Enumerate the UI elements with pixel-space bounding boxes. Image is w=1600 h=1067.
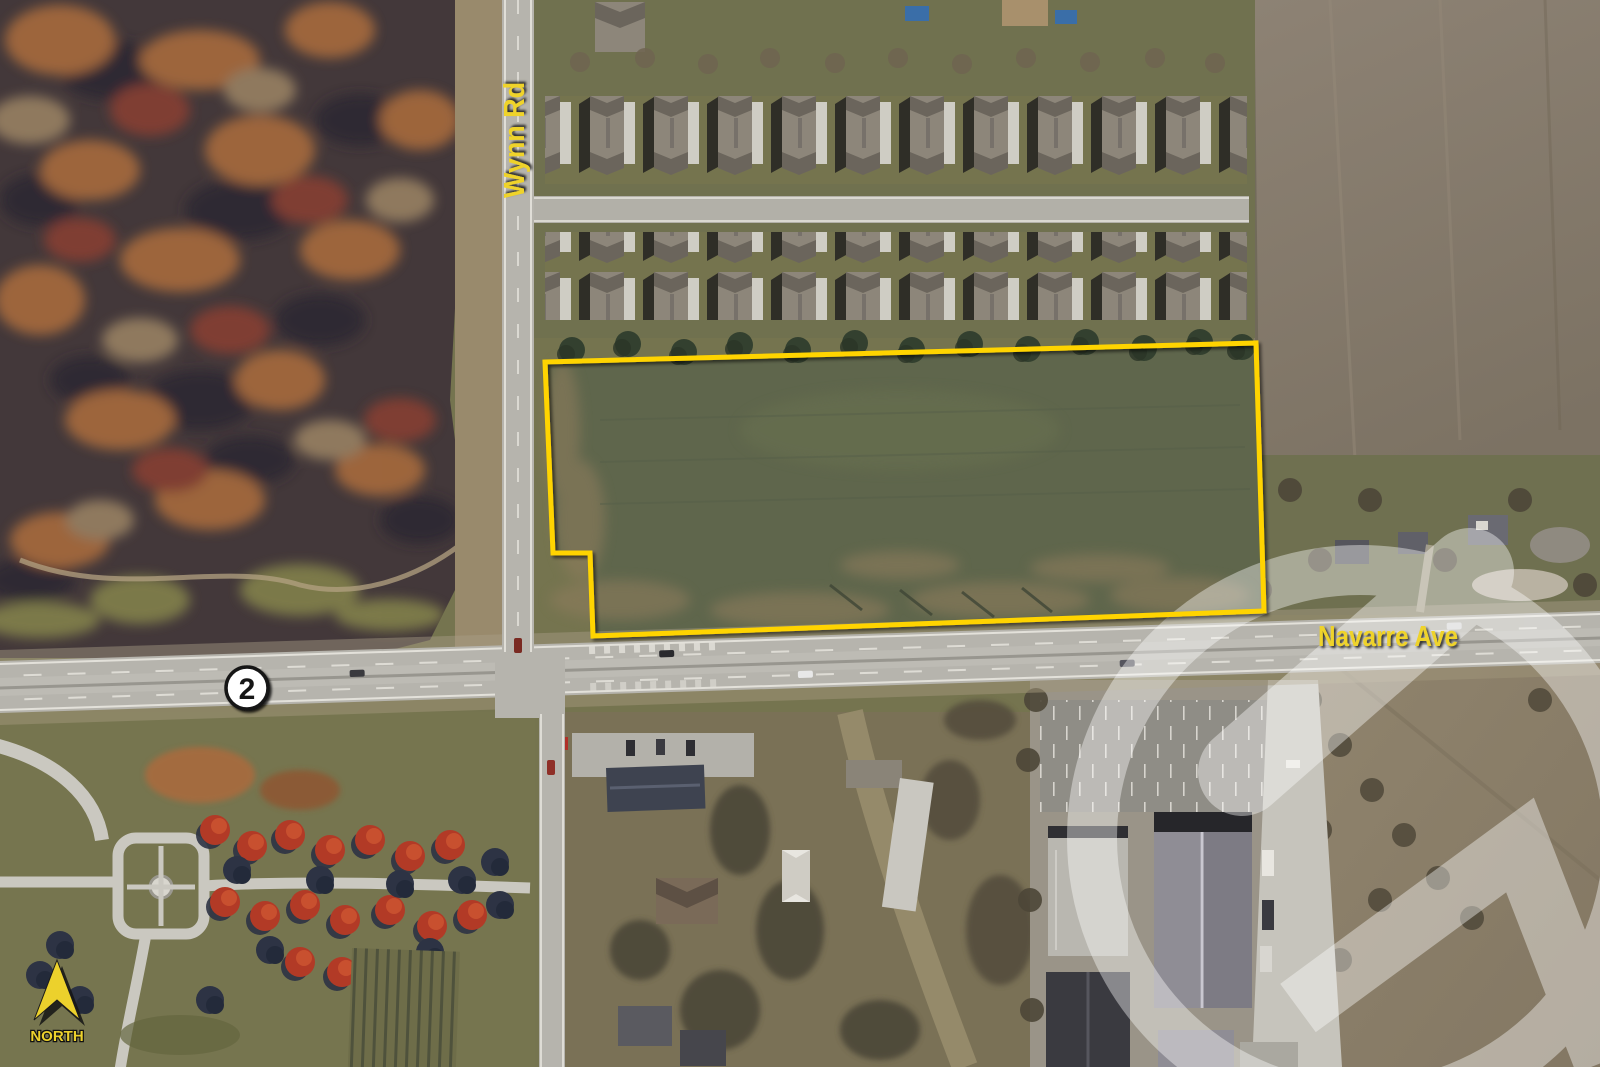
north-label: NORTH xyxy=(30,1028,83,1045)
forest xyxy=(0,0,470,658)
parcel-land xyxy=(544,329,1264,636)
plowed-field-northeast xyxy=(1250,0,1600,520)
wynn-rd-label: Wynn Rd xyxy=(499,82,531,198)
route-shield-number: 2 xyxy=(239,673,256,706)
subdivision xyxy=(533,0,1255,338)
aerial-map: Wynn Rd Navarre Ave 2 NORTH xyxy=(0,0,1600,1067)
terrain xyxy=(0,0,1600,1067)
route-2-shield: 2 xyxy=(226,667,268,709)
field-strip-west-of-wynn xyxy=(455,0,503,660)
south-middle xyxy=(560,700,1045,1067)
navarre-ave-label: Navarre Ave xyxy=(1318,621,1458,653)
